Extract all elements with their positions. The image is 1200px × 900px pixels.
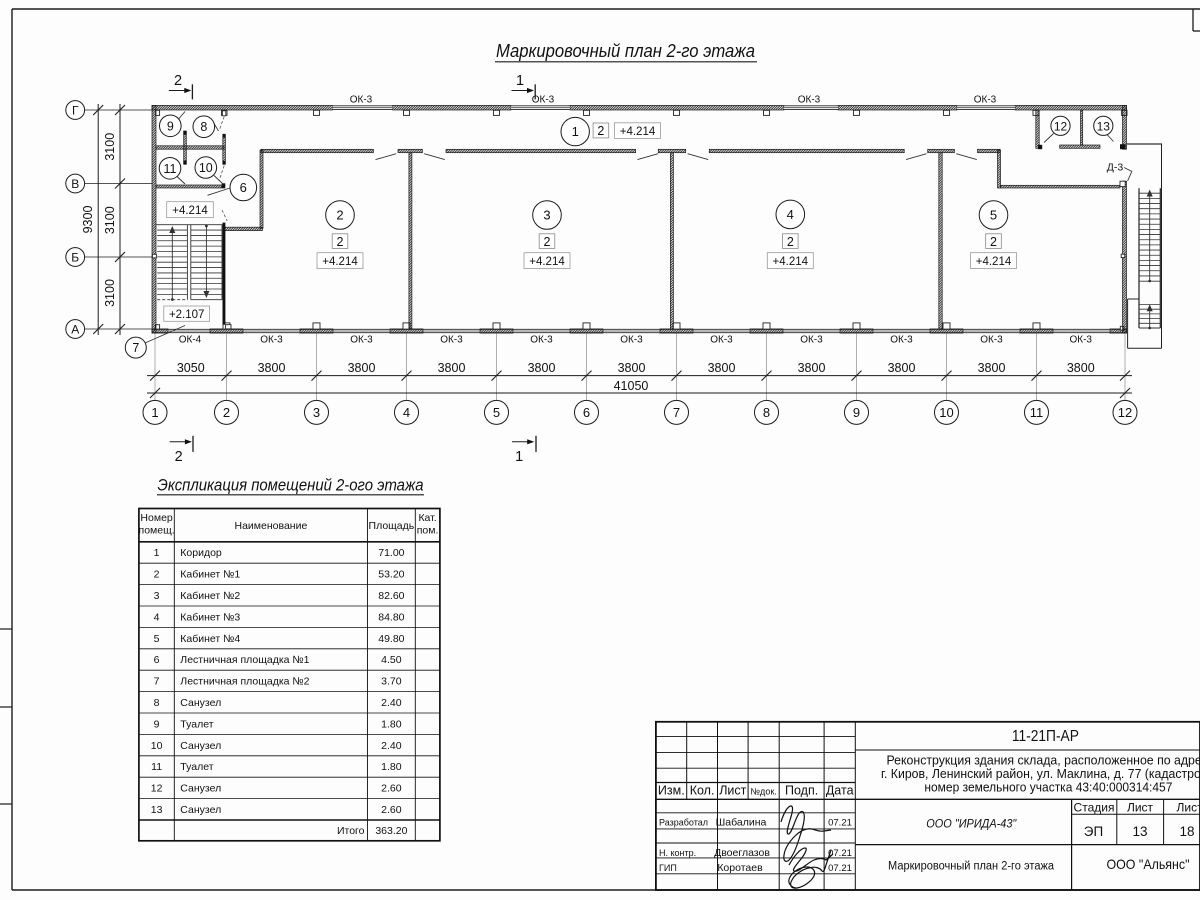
svg-text:2: 2	[174, 73, 182, 89]
svg-text:3: 3	[313, 405, 320, 420]
svg-text:2: 2	[544, 235, 551, 249]
svg-text:+4.214: +4.214	[620, 126, 656, 138]
svg-text:Кат.: Кат.	[418, 512, 436, 524]
svg-text:2: 2	[597, 124, 604, 138]
svg-text:Наименование: Наименование	[235, 520, 308, 532]
svg-text:помещ.: помещ.	[139, 525, 175, 537]
svg-text:4: 4	[403, 405, 410, 420]
svg-text:10: 10	[939, 405, 953, 420]
svg-text:07.21: 07.21	[828, 817, 852, 828]
svg-text:2: 2	[223, 405, 230, 420]
svg-text:+4.214: +4.214	[172, 205, 208, 217]
svg-text:Шабалина: Шабалина	[716, 816, 767, 828]
svg-text:Стадия: Стадия	[1074, 800, 1115, 814]
svg-text:Туалет: Туалет	[180, 761, 213, 773]
svg-text:Площадь: Площадь	[369, 520, 415, 532]
svg-text:1.80: 1.80	[381, 761, 402, 773]
svg-text:49.80: 49.80	[378, 633, 404, 645]
svg-text:3800: 3800	[798, 361, 826, 375]
svg-text:82.60: 82.60	[378, 590, 404, 602]
svg-text:ООО "Альянс": ООО "Альянс"	[1107, 856, 1190, 872]
svg-text:ОК-3: ОК-3	[260, 335, 283, 346]
svg-text:ОК-3: ОК-3	[890, 335, 913, 346]
svg-text:Санузел: Санузел	[180, 697, 221, 709]
svg-text:9: 9	[167, 119, 174, 133]
svg-text:ОК-3: ОК-3	[620, 335, 643, 346]
svg-text:07.21: 07.21	[828, 863, 852, 874]
svg-text:Кабинет №2: Кабинет №2	[180, 590, 240, 602]
svg-text:3800: 3800	[618, 361, 646, 375]
svg-text:Лист: Лист	[719, 784, 746, 798]
svg-text:3800: 3800	[258, 361, 286, 375]
svg-text:пом.: пом.	[417, 525, 439, 537]
svg-text:ООО "ИРИДА-43": ООО "ИРИДА-43"	[926, 816, 1017, 830]
svg-text:Н. контр.: Н. контр.	[659, 848, 696, 858]
svg-text:1: 1	[154, 547, 160, 559]
svg-text:ОК-3: ОК-3	[1070, 335, 1093, 346]
svg-text:4: 4	[787, 207, 794, 222]
svg-text:8: 8	[763, 405, 770, 420]
svg-text:5: 5	[990, 208, 997, 223]
svg-text:3800: 3800	[978, 361, 1006, 375]
svg-text:ОК-3: ОК-3	[350, 94, 373, 105]
svg-text:11: 11	[164, 162, 177, 176]
svg-text:9300: 9300	[81, 206, 95, 234]
svg-text:11-21П-АР: 11-21П-АР	[1012, 728, 1079, 745]
svg-text:Экспликация помещений 2-ого эт: Экспликация помещений 2-ого этажа	[158, 476, 424, 495]
svg-text:5: 5	[493, 405, 500, 420]
svg-text:Кабинет №4: Кабинет №4	[180, 633, 240, 645]
svg-text:В: В	[71, 177, 79, 191]
svg-text:Маркировочный план 2-го этажа: Маркировочный план 2-го этажа	[496, 41, 755, 61]
svg-text:ОК-3: ОК-3	[980, 335, 1003, 346]
svg-text:41050: 41050	[614, 379, 649, 393]
svg-text:2: 2	[154, 569, 160, 581]
svg-text:1: 1	[515, 449, 523, 465]
svg-text:Разработал: Разработал	[659, 817, 708, 827]
svg-text:Лестничная площадка №2: Лестничная площадка №2	[180, 676, 309, 688]
svg-text:8: 8	[200, 120, 207, 134]
svg-text:Номер: Номер	[140, 512, 172, 524]
svg-text:3: 3	[543, 208, 550, 223]
svg-text:2.40: 2.40	[381, 740, 402, 752]
svg-text:6: 6	[240, 180, 247, 195]
svg-text:13: 13	[1097, 119, 1111, 133]
svg-text:3100: 3100	[103, 279, 117, 307]
svg-text:Кабинет №3: Кабинет №3	[180, 611, 240, 623]
svg-text:2: 2	[990, 235, 997, 249]
svg-text:12: 12	[1054, 119, 1068, 133]
svg-text:3800: 3800	[438, 361, 466, 375]
svg-text:3: 3	[154, 590, 160, 602]
svg-text:3800: 3800	[1067, 361, 1095, 375]
svg-text:Маркировочный план 2-го этажа: Маркировочный план 2-го этажа	[888, 860, 1055, 872]
svg-text:4: 4	[154, 611, 160, 623]
svg-text:+4.214: +4.214	[322, 256, 358, 268]
svg-text:12: 12	[1118, 405, 1132, 420]
svg-text:ОК-4: ОК-4	[179, 335, 202, 346]
svg-text:номер земельного участка 43:40: номер земельного участка 43:40:000314:45…	[924, 779, 1172, 794]
svg-text:13: 13	[1132, 824, 1147, 839]
svg-text:Коротаев: Коротаев	[717, 862, 763, 874]
svg-text:+4.214: +4.214	[529, 256, 565, 268]
svg-text:11: 11	[151, 761, 162, 773]
svg-text:2.60: 2.60	[381, 804, 402, 816]
svg-text:ОК-3: ОК-3	[710, 335, 733, 346]
svg-text:3.70: 3.70	[381, 676, 402, 688]
svg-text:Санузел: Санузел	[180, 783, 221, 795]
svg-text:1: 1	[572, 124, 579, 139]
svg-text:ОК-3: ОК-3	[800, 335, 823, 346]
svg-text:18: 18	[1179, 824, 1194, 839]
svg-text:6: 6	[583, 405, 590, 420]
svg-text:ОК-3: ОК-3	[440, 335, 463, 346]
svg-text:7: 7	[154, 676, 160, 688]
svg-text:ЭП: ЭП	[1084, 824, 1103, 839]
svg-text:1: 1	[516, 73, 524, 89]
svg-text:8: 8	[154, 697, 160, 709]
svg-text:Двоеглазов: Двоеглазов	[714, 847, 770, 859]
svg-text:Лестничная площадка №1: Лестничная площадка №1	[180, 654, 309, 666]
svg-text:1: 1	[151, 405, 158, 420]
svg-text:5: 5	[154, 633, 160, 645]
svg-text:ОК-3: ОК-3	[974, 94, 997, 105]
svg-text:2: 2	[337, 235, 344, 249]
svg-text:71.00: 71.00	[378, 547, 404, 559]
svg-text:Туалет: Туалет	[180, 718, 213, 730]
svg-text:Итого: Итого	[337, 825, 365, 837]
svg-text:Кол.: Кол.	[690, 784, 715, 798]
svg-text:84.80: 84.80	[378, 611, 404, 623]
svg-text:ОК-3: ОК-3	[532, 94, 555, 105]
svg-text:3100: 3100	[103, 133, 117, 161]
svg-text:2: 2	[336, 208, 343, 223]
svg-text:9: 9	[853, 405, 860, 420]
svg-text:№док.: №док.	[750, 787, 776, 797]
svg-text:Санузел: Санузел	[180, 740, 221, 752]
svg-text:+4.214: +4.214	[773, 256, 809, 268]
svg-text:+2.107: +2.107	[169, 309, 205, 321]
svg-text:3100: 3100	[103, 206, 117, 234]
svg-text:Подп.: Подп.	[785, 784, 818, 798]
svg-text:9: 9	[154, 718, 160, 730]
svg-text:07.21: 07.21	[828, 848, 852, 859]
svg-text:Санузел: Санузел	[180, 804, 221, 816]
svg-text:363.20: 363.20	[375, 825, 407, 837]
svg-text:3800: 3800	[528, 361, 556, 375]
svg-text:Б: Б	[71, 250, 79, 264]
svg-text:7: 7	[132, 341, 139, 355]
svg-text:4.50: 4.50	[381, 654, 402, 666]
svg-text:+4.214: +4.214	[976, 256, 1012, 268]
svg-text:Д-3: Д-3	[1107, 162, 1124, 174]
svg-text:6: 6	[154, 654, 160, 666]
svg-text:ГИП: ГИП	[659, 863, 677, 873]
svg-text:ОК-3: ОК-3	[798, 94, 821, 105]
svg-text:Листов: Листов	[1177, 800, 1200, 814]
svg-text:А: А	[71, 322, 79, 336]
svg-text:Коридор: Коридор	[180, 547, 222, 559]
svg-text:3800: 3800	[888, 361, 916, 375]
svg-text:7: 7	[673, 405, 680, 420]
svg-text:Дата: Дата	[826, 784, 854, 798]
svg-text:2: 2	[787, 235, 794, 249]
svg-text:2.40: 2.40	[381, 697, 402, 709]
svg-text:10: 10	[199, 161, 213, 175]
svg-text:2: 2	[175, 449, 183, 465]
svg-text:3800: 3800	[708, 361, 736, 375]
svg-text:13: 13	[151, 804, 163, 816]
svg-text:ОК-3: ОК-3	[350, 335, 373, 346]
svg-text:3050: 3050	[177, 361, 205, 375]
svg-text:Г: Г	[72, 103, 79, 117]
svg-text:Лист: Лист	[1127, 800, 1154, 814]
svg-text:11: 11	[1030, 405, 1044, 420]
svg-text:ОК-3: ОК-3	[530, 335, 553, 346]
svg-text:12: 12	[151, 783, 163, 795]
svg-text:Изм.: Изм.	[658, 784, 685, 798]
svg-text:1.80: 1.80	[381, 718, 402, 730]
svg-text:10: 10	[151, 740, 163, 752]
svg-text:Кабинет №1: Кабинет №1	[180, 569, 240, 581]
svg-text:53.20: 53.20	[378, 569, 404, 581]
svg-text:2.60: 2.60	[381, 783, 402, 795]
svg-text:3800: 3800	[348, 361, 376, 375]
